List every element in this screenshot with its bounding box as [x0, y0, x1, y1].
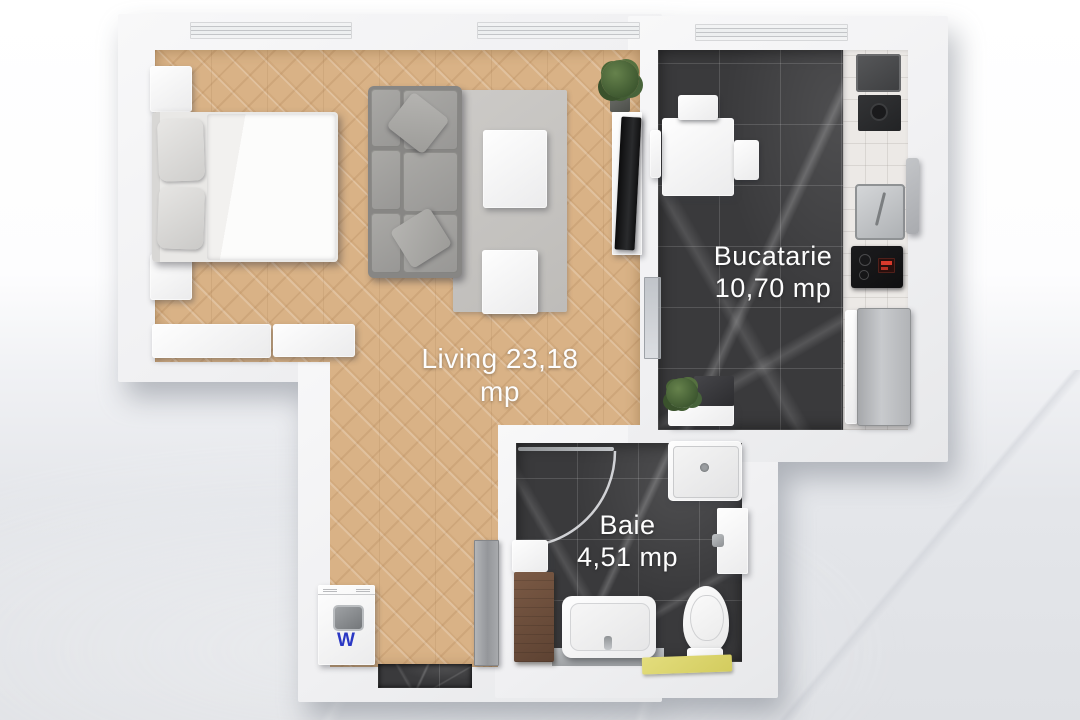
- window-living: [477, 22, 640, 39]
- kitchen-faucet: [875, 192, 886, 226]
- bed: [152, 112, 338, 262]
- counter-appliance-top: [856, 54, 901, 92]
- plant-kitchen: [666, 378, 698, 408]
- bathroom-room-name: Baie: [560, 510, 695, 542]
- washer-door: [333, 605, 364, 631]
- kitchen-room-name: Bucatarie: [698, 241, 848, 273]
- washer-panel-line: [318, 594, 375, 595]
- counter-appliance-second: [858, 95, 901, 131]
- bathroom-room-label: Baie 4,51 mp: [560, 510, 695, 574]
- cooktop-knob: [859, 270, 869, 280]
- washing-machine: W: [318, 585, 375, 665]
- dining-table: [662, 118, 734, 196]
- appliance-burner: [870, 103, 888, 121]
- cooktop-knob: [859, 254, 871, 266]
- sofa-back-cushion: [371, 150, 401, 210]
- kitchen-sink: [855, 184, 905, 240]
- bathroom-room-area: 4,51 mp: [560, 542, 695, 574]
- bathroom-faucet: [604, 636, 612, 650]
- towel-radiator: [717, 508, 748, 574]
- nightstand-top: [150, 66, 192, 112]
- kitchen-room-area: 10,70 mp: [698, 273, 848, 305]
- cooktop-display: [878, 258, 895, 273]
- kitchen-bench-slab: [694, 376, 734, 406]
- dining-chair-left: [650, 130, 661, 178]
- cooktop-display-digits: [881, 267, 888, 270]
- plant-living: [601, 60, 639, 98]
- bed-pillow-bottom: [157, 186, 205, 250]
- bedroom-bench-right: [273, 324, 355, 357]
- toilet: [683, 586, 729, 654]
- bathroom-cabinet-wood: [514, 572, 554, 662]
- coffee-table: [483, 130, 547, 208]
- radiator-valve: [712, 534, 724, 547]
- sofa: [368, 86, 462, 278]
- cooktop-display-digits: [881, 261, 892, 265]
- kitchen-room-label: Bucatarie 10,70 mp: [698, 241, 848, 305]
- window-kitchen: [695, 24, 848, 41]
- toilet-lid-line: [690, 595, 724, 641]
- shower-tray-inner: [673, 446, 739, 498]
- washer-controls: [356, 588, 370, 592]
- floor-plan-image: W: [0, 0, 1080, 720]
- bed-duvet: [207, 114, 336, 260]
- bathroom-sink: [562, 596, 656, 658]
- bath-mat-yellow: [642, 654, 733, 674]
- sofa-seat-cushion: [403, 152, 458, 212]
- bathroom-shelf-white: [512, 540, 548, 572]
- shower-tray: [668, 441, 742, 501]
- shower-drain: [700, 463, 709, 472]
- washer-letter: W: [337, 631, 355, 650]
- window-bedroom: [190, 22, 352, 39]
- washer-controls: [323, 588, 337, 592]
- fridge: [857, 308, 911, 426]
- ottoman: [482, 250, 538, 314]
- dining-chair-right: [734, 140, 759, 180]
- bathroom-door-open: [474, 540, 499, 666]
- tall-cabinet-handle: [906, 158, 919, 234]
- bed-pillow-top: [157, 118, 205, 182]
- dining-chair-top: [678, 95, 718, 120]
- bedroom-bench-left: [152, 324, 271, 358]
- cooktop: [851, 246, 903, 288]
- entrance-threshold: [378, 664, 472, 688]
- kitchen-glass-door: [644, 277, 661, 359]
- living-room-label: Living 23,18 mp: [400, 342, 600, 408]
